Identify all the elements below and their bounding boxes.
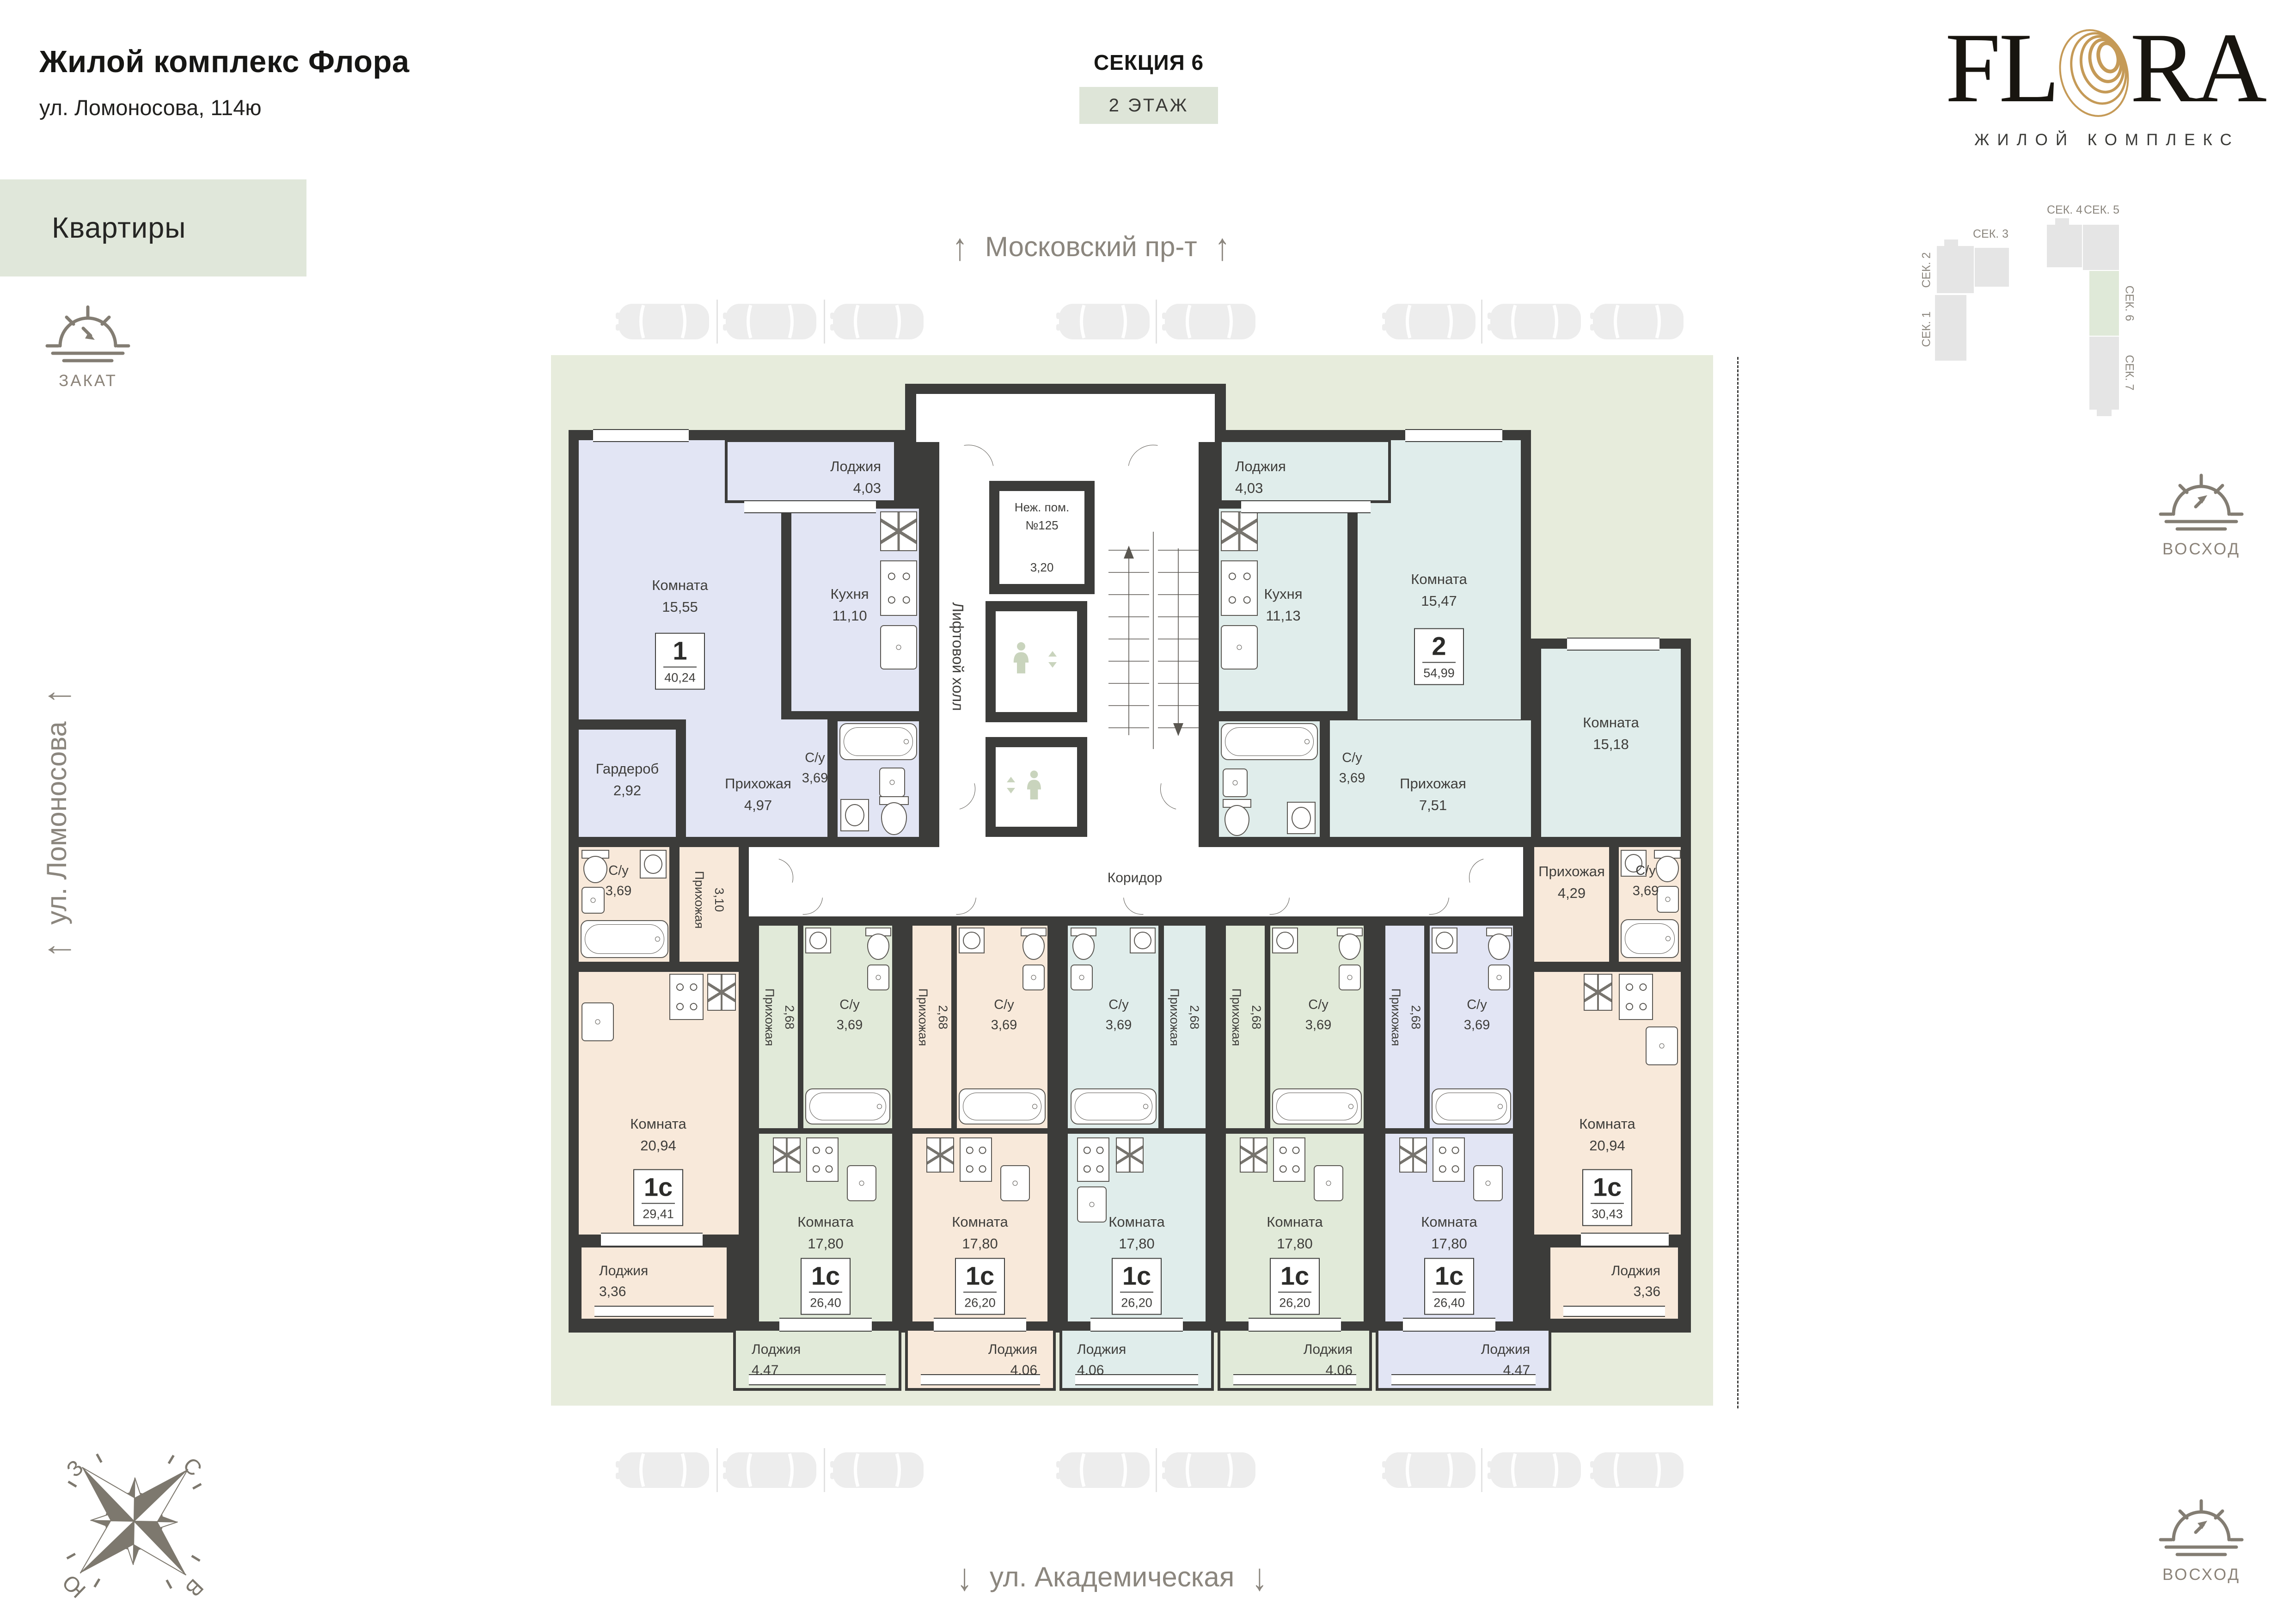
wc-label: С/у3,69 (606, 861, 631, 901)
car-icon (829, 1448, 926, 1492)
loggia-label: Лоджия4,03 (1235, 456, 1286, 499)
wc-label: С/у3,69 (1106, 995, 1132, 1035)
car-icon (1381, 300, 1478, 344)
parking-divider (716, 1448, 718, 1492)
window (744, 500, 876, 513)
elevator-hall-label: Лифтовой холл (949, 602, 967, 711)
logo-subtitle: ЖИЛОЙ КОМПЛЕКС (1945, 131, 2269, 149)
site-map-sec4-label: СЕК. 4 (2047, 203, 2082, 217)
wc-label: С/у3,69 (802, 748, 828, 788)
stove-icon (806, 1137, 839, 1182)
car-icon (1381, 1448, 1478, 1492)
room-label: Комната15,55 (652, 575, 708, 618)
stove-icon (1619, 974, 1653, 1020)
apartment-b2-badge[interactable]: 1с26,40 (801, 1258, 851, 1315)
toilet-icon (1337, 928, 1361, 959)
kitchen-sink-icon (1473, 1165, 1503, 1201)
sunset-label: ЗАКАТ (41, 372, 135, 390)
window (601, 1233, 703, 1247)
stairwell-interior (916, 394, 1215, 442)
hall-label: Прихожая4,97 (725, 773, 791, 816)
hall-label: 3,10Прихожая (689, 871, 729, 928)
car-icon (1487, 1448, 1584, 1492)
washer-icon (840, 799, 869, 831)
stairs-down-arrow (1173, 723, 1183, 736)
arrow-down-icon: ↓ (1252, 1555, 1267, 1599)
stove-icon (1077, 1137, 1109, 1182)
site-map-sec6-block[interactable] (2089, 271, 2119, 336)
kitchen-sink-icon (1314, 1165, 1343, 1201)
street-left: ↑ ул. Ломоносова ↑ (39, 688, 74, 958)
wc-label: С/у3,69 (1464, 995, 1490, 1035)
car-icon (1055, 300, 1152, 344)
window (1567, 638, 1659, 651)
page-title: Жилой комплекс Флора (39, 44, 410, 80)
hall-label: 2,68Прихожая (913, 988, 953, 1046)
bathtub-icon (959, 1088, 1046, 1124)
kitchen-sink-icon (1221, 625, 1258, 670)
car-icon (615, 1448, 712, 1492)
site-map-sec5-block[interactable] (2083, 225, 2119, 270)
building-address: ул. Ломоносова, 114ю (39, 95, 262, 120)
compass-south-label: Ю (57, 1570, 90, 1603)
loggia-label: Лоджия3,36 (1562, 1260, 1660, 1302)
washer-icon (640, 850, 667, 879)
bathtub-icon (1071, 1088, 1157, 1124)
toilet-icon (582, 850, 607, 882)
section-boundary-line (1737, 357, 1739, 1408)
kitchen-sink-icon (880, 625, 917, 670)
apartment-b6-badge[interactable]: 1с26,40 (1424, 1258, 1474, 1315)
bathtub-icon (805, 1088, 890, 1124)
sunset-icon (41, 294, 135, 366)
parking-divider (824, 300, 825, 344)
kitchen-label: Кухня11,13 (1264, 584, 1303, 627)
window (1391, 1374, 1536, 1385)
car-icon (722, 1448, 819, 1492)
parking-divider (1156, 1448, 1157, 1492)
apartment-a1-badge[interactable]: 140,24 (655, 633, 705, 690)
arrow-up-icon: ↑ (1215, 225, 1230, 269)
wc-label: С/у3,69 (837, 995, 863, 1035)
washer-icon (1272, 928, 1298, 953)
apartment-b4-badge[interactable]: 1с26,20 (1112, 1258, 1162, 1315)
flora-o-icon (2059, 26, 2132, 121)
corridor-opening (961, 835, 1165, 849)
parking-divider (1481, 1448, 1482, 1492)
site-map-sec4-block[interactable] (2047, 225, 2082, 267)
logo: FL RA ЖИЛОЙ КОМПЛЕКС (1945, 22, 2269, 149)
vent-icon (1116, 1137, 1144, 1173)
compass-east-label: В (181, 1574, 208, 1602)
room-label: Комната20,94 (630, 1113, 686, 1156)
car-icon (1055, 1448, 1152, 1492)
car-icon (1487, 300, 1584, 344)
site-map-sec3-label: СЕК. 3 (1973, 227, 2008, 241)
logo-text-fl: FL (1945, 22, 2058, 114)
vent-icon (707, 974, 736, 1011)
vent-icon (1399, 1137, 1427, 1173)
room-label: Комната17,80 (952, 1211, 1008, 1254)
stove-icon (960, 1137, 992, 1182)
site-map-sec5-label: СЕК. 5 (2084, 203, 2119, 217)
washer-icon (959, 928, 985, 953)
section-title: СЕКЦИЯ 6 (1077, 50, 1220, 75)
sink-icon (1488, 965, 1510, 990)
sunrise-icon (2154, 1488, 2249, 1560)
sunrise-block-2: ВОСХОД (2154, 1488, 2249, 1584)
hall-label: Прихожая7,51 (1400, 773, 1466, 816)
car-icon (615, 300, 712, 344)
window (593, 429, 689, 442)
elevator-1 (996, 611, 1077, 712)
stove-icon (1273, 1137, 1305, 1182)
nonres-area-label: 3,20 (1030, 559, 1054, 577)
window (1405, 429, 1502, 442)
bathtub-icon (839, 723, 917, 760)
hall-label: 2,68Прихожая (1386, 988, 1426, 1046)
window (1581, 1233, 1669, 1247)
window (779, 1318, 872, 1332)
toilet-icon (1071, 928, 1095, 959)
car-icon (1589, 300, 1686, 344)
site-map-sec1-block[interactable] (1935, 295, 1966, 361)
apartment-b3-badge[interactable]: 1с26,20 (955, 1258, 1005, 1315)
wardrobe-label: Гардероб2,92 (596, 758, 659, 801)
window (1233, 1374, 1356, 1385)
vent-icon (773, 1137, 801, 1173)
kitchen-label: Кухня11,10 (831, 584, 869, 627)
kitchen-sink-icon (1646, 1026, 1678, 1065)
hall-label: 2,68Прихожая (1164, 988, 1204, 1046)
stove-icon (880, 560, 917, 616)
sink-icon (582, 887, 605, 914)
arrow-icon: ↑ (35, 942, 79, 958)
hall-label: 2,68Прихожая (759, 988, 799, 1046)
elevator-2 (996, 747, 1077, 827)
kitchen-sink-icon (1000, 1165, 1030, 1201)
parking-divider (1156, 300, 1157, 344)
bathtub-icon (1621, 919, 1679, 958)
parking-divider (716, 300, 718, 344)
elevator-person-icon (1009, 641, 1034, 676)
apartment-b7-badge[interactable]: 1с30,43 (1582, 1169, 1632, 1226)
kitchen-sink-icon (847, 1165, 876, 1201)
car-icon (829, 300, 926, 344)
sunrise-label: ВОСХОД (2154, 1566, 2249, 1584)
sink-icon (1657, 886, 1679, 913)
nav-apartments[interactable]: Квартиры (0, 179, 306, 276)
sink-icon (1071, 965, 1093, 990)
car-icon (1161, 1448, 1258, 1492)
wc-label: С/у3,69 (1339, 748, 1365, 788)
sink-icon (1022, 965, 1045, 990)
toilet-icon (1021, 928, 1045, 959)
bathtub-icon (581, 920, 668, 958)
arrow-down-icon: ↓ (957, 1555, 972, 1599)
stove-icon (1221, 560, 1258, 616)
room-label: Комната17,80 (797, 1211, 853, 1254)
room-label: Комната20,94 (1579, 1113, 1635, 1156)
room-label: Комната17,80 (1421, 1211, 1477, 1254)
arrow-up-icon: ↑ (952, 225, 967, 269)
site-map-sec7-block[interactable] (2089, 337, 2119, 410)
kitchen-sink-icon (1077, 1186, 1107, 1223)
car-icon (1161, 300, 1258, 344)
kitchen-sink-icon (582, 1002, 614, 1041)
toilet-icon (1486, 928, 1510, 959)
window (1075, 1374, 1198, 1385)
window (594, 1306, 714, 1317)
elevator-person-icon (1022, 769, 1046, 802)
room-label: Комната15,18 (1583, 712, 1639, 755)
apartment-a2-badge[interactable]: 254,99 (1414, 628, 1464, 685)
window (1403, 1318, 1495, 1332)
site-map-sec3-block[interactable] (1975, 248, 2009, 287)
elevator-arrows-icon (1006, 776, 1016, 794)
sunset-block: ЗАКАТ (41, 294, 135, 390)
apartment-b5-badge[interactable]: 1с26,20 (1270, 1258, 1320, 1315)
room-label: Комната15,47 (1411, 569, 1467, 612)
floor-plan-page: Жилой комплекс Флора ул. Ломоносова, 114… (0, 0, 2296, 1622)
window (1249, 1318, 1341, 1332)
parking-divider (1481, 300, 1482, 344)
floor-badge[interactable]: 2 ЭТАЖ (1079, 87, 1218, 124)
stairs-up-arrow (1124, 546, 1134, 559)
vent-icon (1584, 974, 1612, 1011)
sunrise-label: ВОСХОД (2154, 540, 2249, 559)
sink-icon (879, 768, 905, 797)
vent-icon (1221, 511, 1258, 551)
staircase (1108, 532, 1199, 749)
washer-icon (1287, 802, 1316, 834)
room-label: Комната17,80 (1108, 1211, 1164, 1254)
bathtub-icon (1272, 1088, 1362, 1124)
site-map-sec6-label: СЕК. 6 (2123, 285, 2136, 321)
arrow-icon: ↑ (35, 688, 79, 704)
window (934, 1318, 1026, 1332)
street-top: ↑ Московский пр-т ↑ (952, 229, 1230, 264)
wc-label: С/у3,69 (1633, 861, 1659, 901)
site-map-sec2-block[interactable] (1937, 246, 1974, 293)
vent-icon (926, 1137, 954, 1173)
bathtub-icon (1432, 1088, 1511, 1124)
toilet-icon (879, 796, 907, 834)
window (1241, 500, 1371, 513)
washer-icon (805, 928, 831, 953)
washer-icon (1432, 928, 1457, 953)
bathtub-icon (1221, 723, 1318, 760)
elevator-arrows-icon (1047, 650, 1058, 669)
window (749, 1374, 886, 1385)
site-map-block (2097, 409, 2112, 416)
sink-icon (1339, 965, 1361, 990)
hall-label: 2,68Прихожая (1226, 988, 1266, 1046)
washer-icon (1130, 928, 1156, 953)
logo-text-ra: RA (2130, 22, 2265, 114)
toilet-icon (865, 928, 889, 959)
street-bottom: ↓ ул. Академическая ↓ (957, 1559, 1267, 1594)
hall-label: Прихожая4,29 (1538, 861, 1605, 904)
sunrise-icon (2154, 462, 2249, 534)
room-label: Комната17,80 (1267, 1211, 1322, 1254)
window (921, 1374, 1040, 1385)
sink-icon (867, 965, 889, 990)
sink-icon (1223, 768, 1248, 797)
wc-label: С/у3,69 (991, 995, 1017, 1035)
nonres-label: Неж. пом.№125 (1015, 498, 1069, 535)
window (1090, 1318, 1183, 1332)
wc-label: С/у3,69 (1305, 995, 1331, 1035)
parking-divider (824, 1448, 825, 1492)
sunrise-block-1: ВОСХОД (2154, 462, 2249, 559)
site-map-sec2-label: СЕК. 2 (1920, 252, 1934, 288)
loggia-label: Лоджия4,03 (781, 456, 881, 499)
car-icon (1589, 1448, 1686, 1492)
stove-icon (669, 974, 704, 1020)
window (1563, 1306, 1665, 1317)
compass-rose-icon: С З В Ю (39, 1426, 229, 1616)
apartment-b1-badge[interactable]: 1с29,41 (633, 1169, 683, 1226)
vent-icon (880, 511, 917, 551)
stove-icon (1433, 1137, 1465, 1182)
site-map-sec1-label: СЕК. 1 (1920, 311, 1934, 347)
toilet-icon (1223, 799, 1249, 835)
vent-icon (1240, 1137, 1267, 1173)
car-icon (722, 300, 819, 344)
site-map-sec7-label: СЕК. 7 (2123, 355, 2136, 390)
loggia-label: Лоджия3,36 (599, 1260, 648, 1302)
